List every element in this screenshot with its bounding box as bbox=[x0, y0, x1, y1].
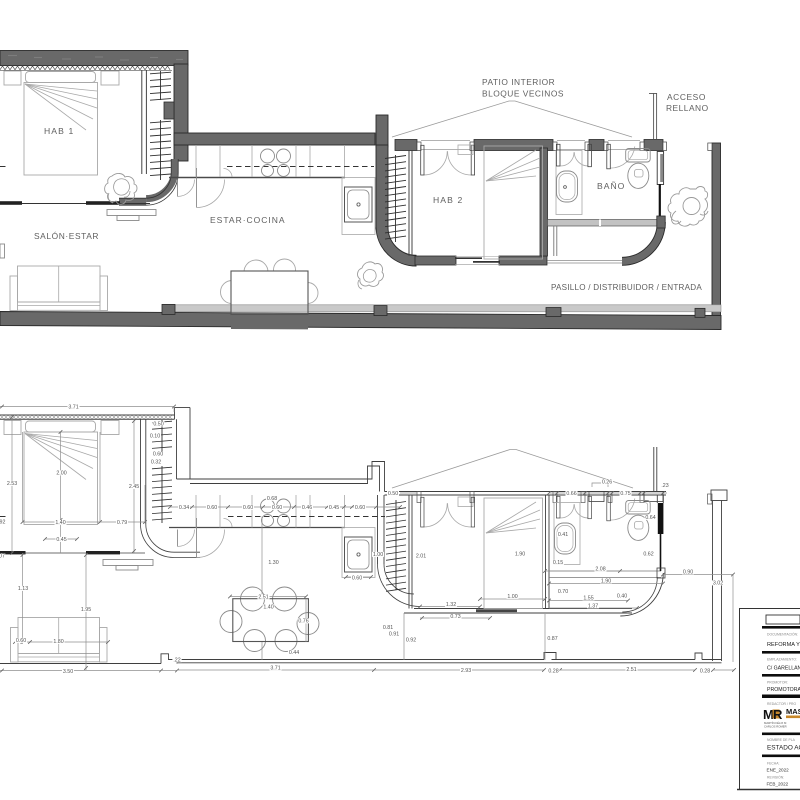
svg-text:0.75: 0.75 bbox=[620, 491, 630, 497]
svg-text:2.45: 2.45 bbox=[129, 484, 139, 490]
svg-text:1.90: 1.90 bbox=[601, 579, 611, 585]
svg-text:PATIO INTERIOR: PATIO INTERIOR bbox=[482, 77, 555, 87]
svg-text:0.10: 0.10 bbox=[150, 434, 160, 440]
svg-text:EMPLAZAMIENTO:: EMPLAZAMIENTO: bbox=[767, 658, 797, 662]
svg-text:2.51: 2.51 bbox=[626, 667, 636, 673]
svg-text:0.76: 0.76 bbox=[298, 619, 308, 625]
svg-text:3.71: 3.71 bbox=[68, 405, 78, 411]
svg-text:0.15: 0.15 bbox=[553, 560, 563, 566]
svg-text:0.28: 0.28 bbox=[548, 669, 558, 675]
svg-text:0.64: 0.64 bbox=[645, 515, 655, 521]
svg-text:3.02: 3.02 bbox=[713, 581, 723, 587]
svg-text:.22: .22 bbox=[173, 658, 180, 664]
svg-text:2.53: 2.53 bbox=[7, 481, 17, 487]
svg-text:0.60: 0.60 bbox=[355, 505, 365, 511]
svg-text:0.60: 0.60 bbox=[153, 452, 163, 458]
svg-text:ENE_2022: ENE_2022 bbox=[767, 768, 790, 773]
svg-text:0.45: 0.45 bbox=[56, 537, 66, 543]
svg-text:0.66: 0.66 bbox=[566, 491, 576, 497]
svg-text:ESTADO AC: ESTADO AC bbox=[767, 745, 800, 752]
svg-text:0.68: 0.68 bbox=[267, 496, 277, 502]
svg-text:2.00: 2.00 bbox=[56, 471, 66, 477]
svg-text:BAÑO: BAÑO bbox=[597, 181, 625, 191]
svg-text:0.60: 0.60 bbox=[272, 505, 282, 511]
svg-text:0.46: 0.46 bbox=[302, 505, 312, 511]
svg-text:3.71: 3.71 bbox=[270, 666, 280, 672]
svg-text:0.79: 0.79 bbox=[117, 520, 127, 526]
svg-text:3.50: 3.50 bbox=[63, 669, 73, 675]
svg-text:07: 07 bbox=[0, 554, 5, 560]
svg-text:0.60: 0.60 bbox=[207, 505, 217, 511]
svg-text:0.60: 0.60 bbox=[243, 505, 253, 511]
svg-text:0.34: 0.34 bbox=[179, 505, 189, 511]
svg-text:0.50: 0.50 bbox=[153, 422, 163, 428]
svg-text:92: 92 bbox=[0, 520, 5, 526]
svg-text:0.81: 0.81 bbox=[383, 625, 393, 631]
svg-text:FECHA:: FECHA: bbox=[767, 762, 779, 766]
svg-text:1.40: 1.40 bbox=[55, 520, 65, 526]
svg-text:0.50: 0.50 bbox=[388, 491, 398, 497]
svg-text:0.41: 0.41 bbox=[558, 532, 568, 538]
svg-text:0.45: 0.45 bbox=[329, 505, 339, 511]
svg-text:1.00: 1.00 bbox=[373, 552, 383, 558]
svg-text:ACCESO: ACCESO bbox=[667, 92, 706, 102]
svg-text:1.00: 1.00 bbox=[507, 594, 517, 600]
svg-text:PROMOTORA G: PROMOTORA G bbox=[767, 687, 800, 693]
svg-text:2.08: 2.08 bbox=[595, 567, 605, 573]
svg-text:1.80: 1.80 bbox=[53, 639, 63, 645]
svg-text:ESTAR·COCINA: ESTAR·COCINA bbox=[210, 215, 286, 225]
svg-text:BLOQUE VECINOS: BLOQUE VECINOS bbox=[482, 89, 564, 99]
svg-text:1.55: 1.55 bbox=[583, 596, 593, 602]
svg-text:2.51: 2.51 bbox=[258, 595, 268, 601]
svg-text:0.92: 0.92 bbox=[406, 638, 416, 644]
svg-text:0.87: 0.87 bbox=[547, 636, 557, 642]
svg-text:C/ GARELLANO: C/ GARELLANO bbox=[767, 666, 800, 672]
svg-text:DOCUMENTACIÓN:: DOCUMENTACIÓN: bbox=[767, 632, 798, 637]
svg-text:2.93: 2.93 bbox=[461, 668, 471, 674]
svg-text:1.30: 1.30 bbox=[268, 560, 278, 566]
svg-text:1.95: 1.95 bbox=[81, 607, 91, 613]
svg-text:0.70: 0.70 bbox=[558, 589, 568, 595]
svg-text:CARLOS ROMER: CARLOS ROMER bbox=[764, 725, 787, 729]
svg-text:0.91: 0.91 bbox=[389, 632, 399, 638]
svg-text:0.62: 0.62 bbox=[643, 552, 653, 558]
svg-text:2.01: 2.01 bbox=[416, 554, 426, 560]
svg-text:0.73: 0.73 bbox=[450, 614, 460, 620]
svg-text:0.90: 0.90 bbox=[683, 570, 693, 576]
svg-text:0.32: 0.32 bbox=[151, 460, 161, 466]
svg-text:MAS: MAS bbox=[786, 707, 800, 716]
svg-text:SALÓN·ESTAR: SALÓN·ESTAR bbox=[34, 231, 99, 241]
svg-text:0.40: 0.40 bbox=[617, 594, 627, 600]
svg-text:REVISIÓN:: REVISIÓN: bbox=[767, 775, 784, 780]
svg-text:0.44: 0.44 bbox=[289, 650, 299, 656]
svg-text:0.60: 0.60 bbox=[352, 576, 362, 582]
svg-text:1.13: 1.13 bbox=[18, 586, 28, 592]
svg-text:PASILLO / DISTRIBUIDOR / ENTRA: PASILLO / DISTRIBUIDOR / ENTRADA bbox=[551, 283, 702, 292]
svg-text:.23: .23 bbox=[661, 483, 668, 489]
svg-text:0.28: 0.28 bbox=[700, 669, 710, 675]
svg-text:1.40: 1.40 bbox=[263, 605, 273, 611]
svg-text:REDACTOR / PRO: REDACTOR / PRO bbox=[767, 702, 797, 706]
svg-text:HAB 1: HAB 1 bbox=[44, 126, 74, 136]
svg-text:0.60: 0.60 bbox=[16, 638, 26, 644]
svg-text:1.37: 1.37 bbox=[588, 604, 598, 610]
svg-text:RELLANO: RELLANO bbox=[666, 103, 709, 113]
svg-text:0.26: 0.26 bbox=[602, 480, 612, 486]
svg-text:REFORMA Y AMP: REFORMA Y AMP bbox=[767, 642, 800, 648]
svg-text:1.90: 1.90 bbox=[515, 552, 525, 558]
svg-text:R: R bbox=[773, 707, 783, 722]
svg-text:NOMBRE DE PLA: NOMBRE DE PLA bbox=[767, 738, 796, 742]
svg-text:FEB_2022: FEB_2022 bbox=[767, 782, 789, 787]
svg-text:HAB 2: HAB 2 bbox=[433, 195, 463, 205]
svg-text:1.32: 1.32 bbox=[446, 602, 456, 608]
svg-text:PROMOTOR:: PROMOTOR: bbox=[767, 681, 788, 685]
